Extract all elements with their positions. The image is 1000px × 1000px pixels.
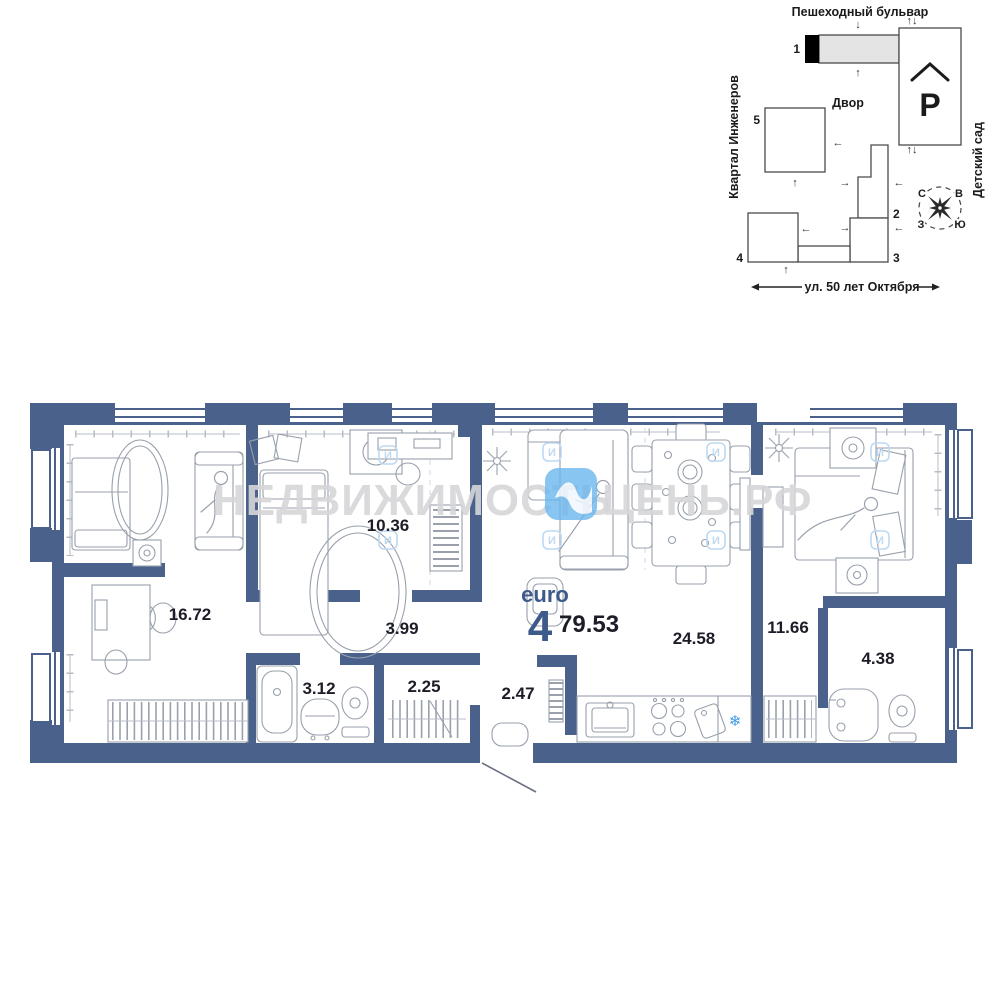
watermark-tile-icon: И [712,447,720,459]
arrow-updown-icon: ↑↓ [907,144,918,156]
arrow-up-icon: ↑ [783,264,789,276]
wardrobe-icon [108,700,248,742]
building-1-number: 1 [793,42,800,56]
wardrobe-icon [388,701,466,737]
floor-plan: ❄ [30,403,972,792]
street-arrow-right [916,284,940,291]
bathroom-sink-icon [301,699,339,740]
watermark-tile-icon: И [548,447,556,459]
pouf-icon [492,723,528,746]
arrow-up-icon: ↑ [792,177,798,189]
total-area-label: 79.53 [559,611,619,638]
watermark-tile-icon: И [384,450,392,462]
watermark-tile-icon: И [712,535,720,547]
arrow-left-icon: ← [894,177,905,189]
furniture: ❄ [72,424,916,746]
building-5-number: 5 [753,113,760,127]
compass-east: В [955,188,963,200]
current-section-marker [805,35,819,63]
floorplan-page: Пешеходный бульвар Квартал Инженеров Дет… [0,0,1000,1000]
tv-stand-icon [133,540,161,566]
arrow-left-icon: ← [833,137,844,149]
bed-icon [72,458,130,550]
compass-west: З [918,219,925,231]
street-arrow-left [751,284,802,291]
area-kitchen-living: 24.58 [673,629,716,648]
arrow-updown-icon: ↑↓ [907,15,918,27]
plant-icon [765,434,793,462]
bathtub-icon [257,666,297,742]
arrow-left-icon: ← [894,222,905,234]
watermark-tile-icon: И [548,535,556,547]
courtyard-label: Двор [832,96,864,110]
plant-icon [483,447,511,475]
toilet-icon [342,687,369,737]
arrow-down-icon: ↓ [855,19,861,31]
arrow-right-icon: → [840,222,851,234]
area-corridor: 3.99 [385,619,418,638]
area-bathroom2: 4.38 [861,649,894,668]
apartment-title: euro 4 79.53 [521,582,619,651]
area-hall: 2.47 [501,684,534,703]
arrow-up-icon: ↑ [855,67,861,79]
bathroom-sink-icon [829,689,878,741]
compass-north: С [918,188,926,200]
building-2-number: 2 [893,207,900,221]
kitchen-counter: ❄ [577,696,751,742]
watermark-tile-icon: И [384,535,392,547]
compass-south: Ю [954,219,965,231]
parking-icon: Р [919,87,940,123]
watermark-tile-icon: И [876,447,884,459]
watermark-tile-icon: И [876,535,884,547]
entrance-door-swing [482,763,536,792]
street-left-label: Квартал Инженеров [727,75,741,199]
building-5: 5 [753,108,825,172]
floorplan-image: Пешеходный бульвар Квартал Инженеров Дет… [0,0,1000,1000]
toilet-icon [889,695,916,742]
area-bedroom2: 10.36 [367,516,410,535]
area-wardrobe: 2.25 [407,677,440,696]
dresser-icon [830,428,876,468]
building-4: 4 [736,213,798,265]
area-bathroom1: 3.12 [302,679,335,698]
rooms-count-label: 4 [528,602,553,651]
street-right-label: Детский сад [971,122,985,198]
snowflake-icon: ❄ [729,713,742,730]
dresser-icon [836,558,878,593]
building-4-number: 4 [736,251,743,265]
area-bedroom3: 11.66 [767,618,809,637]
desk-icon [92,585,176,674]
compass-icon: С В З Ю [918,187,966,231]
building-3-number: 3 [893,251,900,265]
watermark-logo-icon [545,468,597,520]
building-1: 1 [793,35,899,63]
watermark-text-right: ЦЕНЬ.РФ [602,476,812,525]
arrow-left-icon: ← [801,223,812,235]
area-living: 16.72 [169,605,212,624]
radiator-icon [549,680,563,722]
parking-building: Р [899,28,961,145]
wardrobe-icon [764,696,816,742]
site-plan: Пешеходный бульвар Квартал Инженеров Дет… [727,5,985,294]
street-bottom-label: ул. 50 лет Октября [804,280,919,294]
arrow-right-icon: → [840,177,851,189]
